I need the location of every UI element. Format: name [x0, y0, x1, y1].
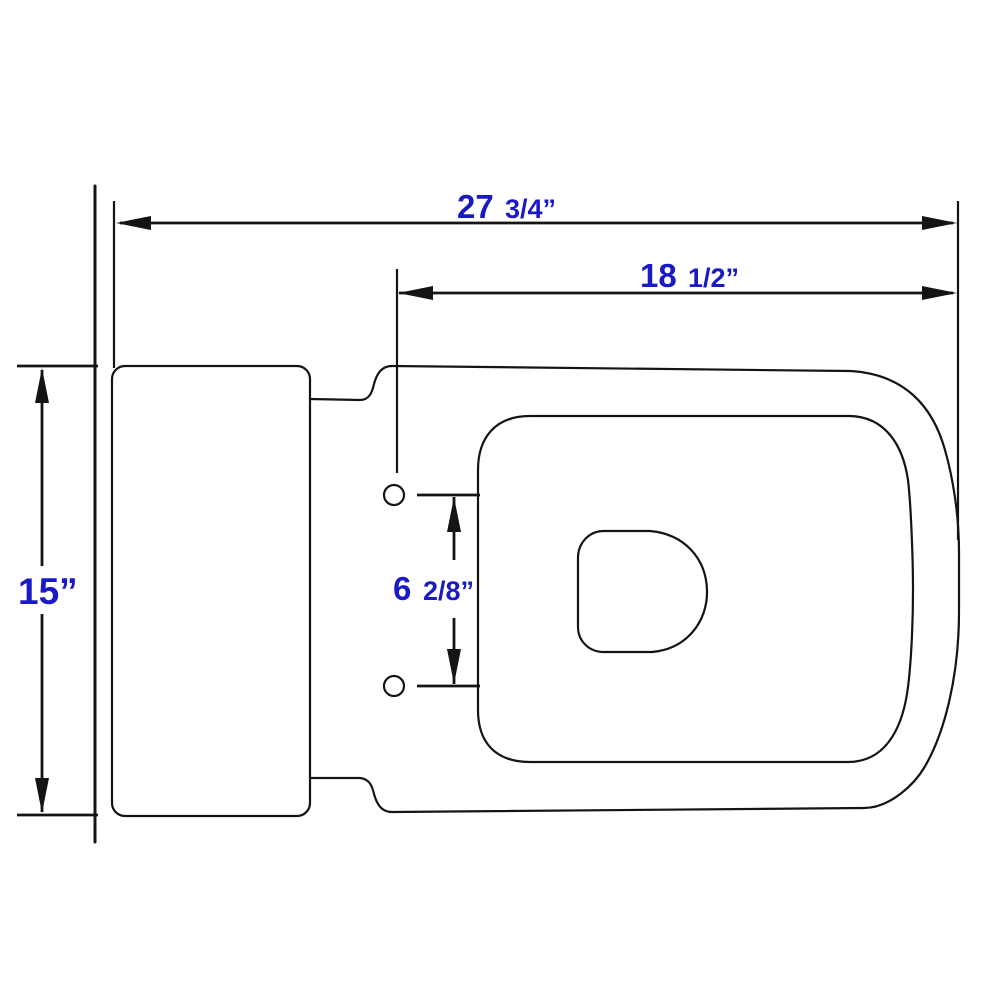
seat-depth-value: 18 — [640, 257, 677, 294]
dimension-seat-depth: 18 1/2” — [397, 257, 957, 473]
dimension-bolt-spacing: 6 2/8” — [393, 495, 480, 686]
arrow-right-icon — [922, 216, 957, 230]
bowl-opening-outline — [578, 531, 707, 652]
overall-width-value: 15” — [18, 571, 78, 612]
dimension-drawing-canvas: 27 3/4” 18 1/2” 15” — [0, 0, 1000, 1000]
arrow-down-icon — [35, 778, 49, 813]
seat-depth-fraction: 1/2” — [688, 263, 739, 293]
tank-outline — [112, 366, 310, 816]
bolt-spacing-fraction: 2/8” — [423, 576, 474, 606]
arrow-left-icon — [116, 216, 151, 230]
dimension-overall-width: 15” — [17, 366, 98, 815]
toilet-top-view-dimension-diagram: 27 3/4” 18 1/2” 15” — [0, 0, 1000, 1000]
overall-depth-value: 27 — [457, 188, 494, 225]
arrow-up-icon — [35, 368, 49, 403]
arrow-left-icon — [398, 286, 433, 300]
arrow-right-icon — [922, 286, 957, 300]
bolt-spacing-value: 6 — [393, 570, 411, 607]
arrow-down-icon — [447, 649, 461, 684]
bolt-hole-top — [384, 485, 404, 505]
dimension-overall-depth: 27 3/4” — [114, 188, 958, 540]
seat-outline — [478, 416, 913, 762]
arrow-up-icon — [447, 497, 461, 532]
overall-depth-fraction: 3/4” — [505, 194, 556, 224]
bolt-hole-bottom — [384, 676, 404, 696]
